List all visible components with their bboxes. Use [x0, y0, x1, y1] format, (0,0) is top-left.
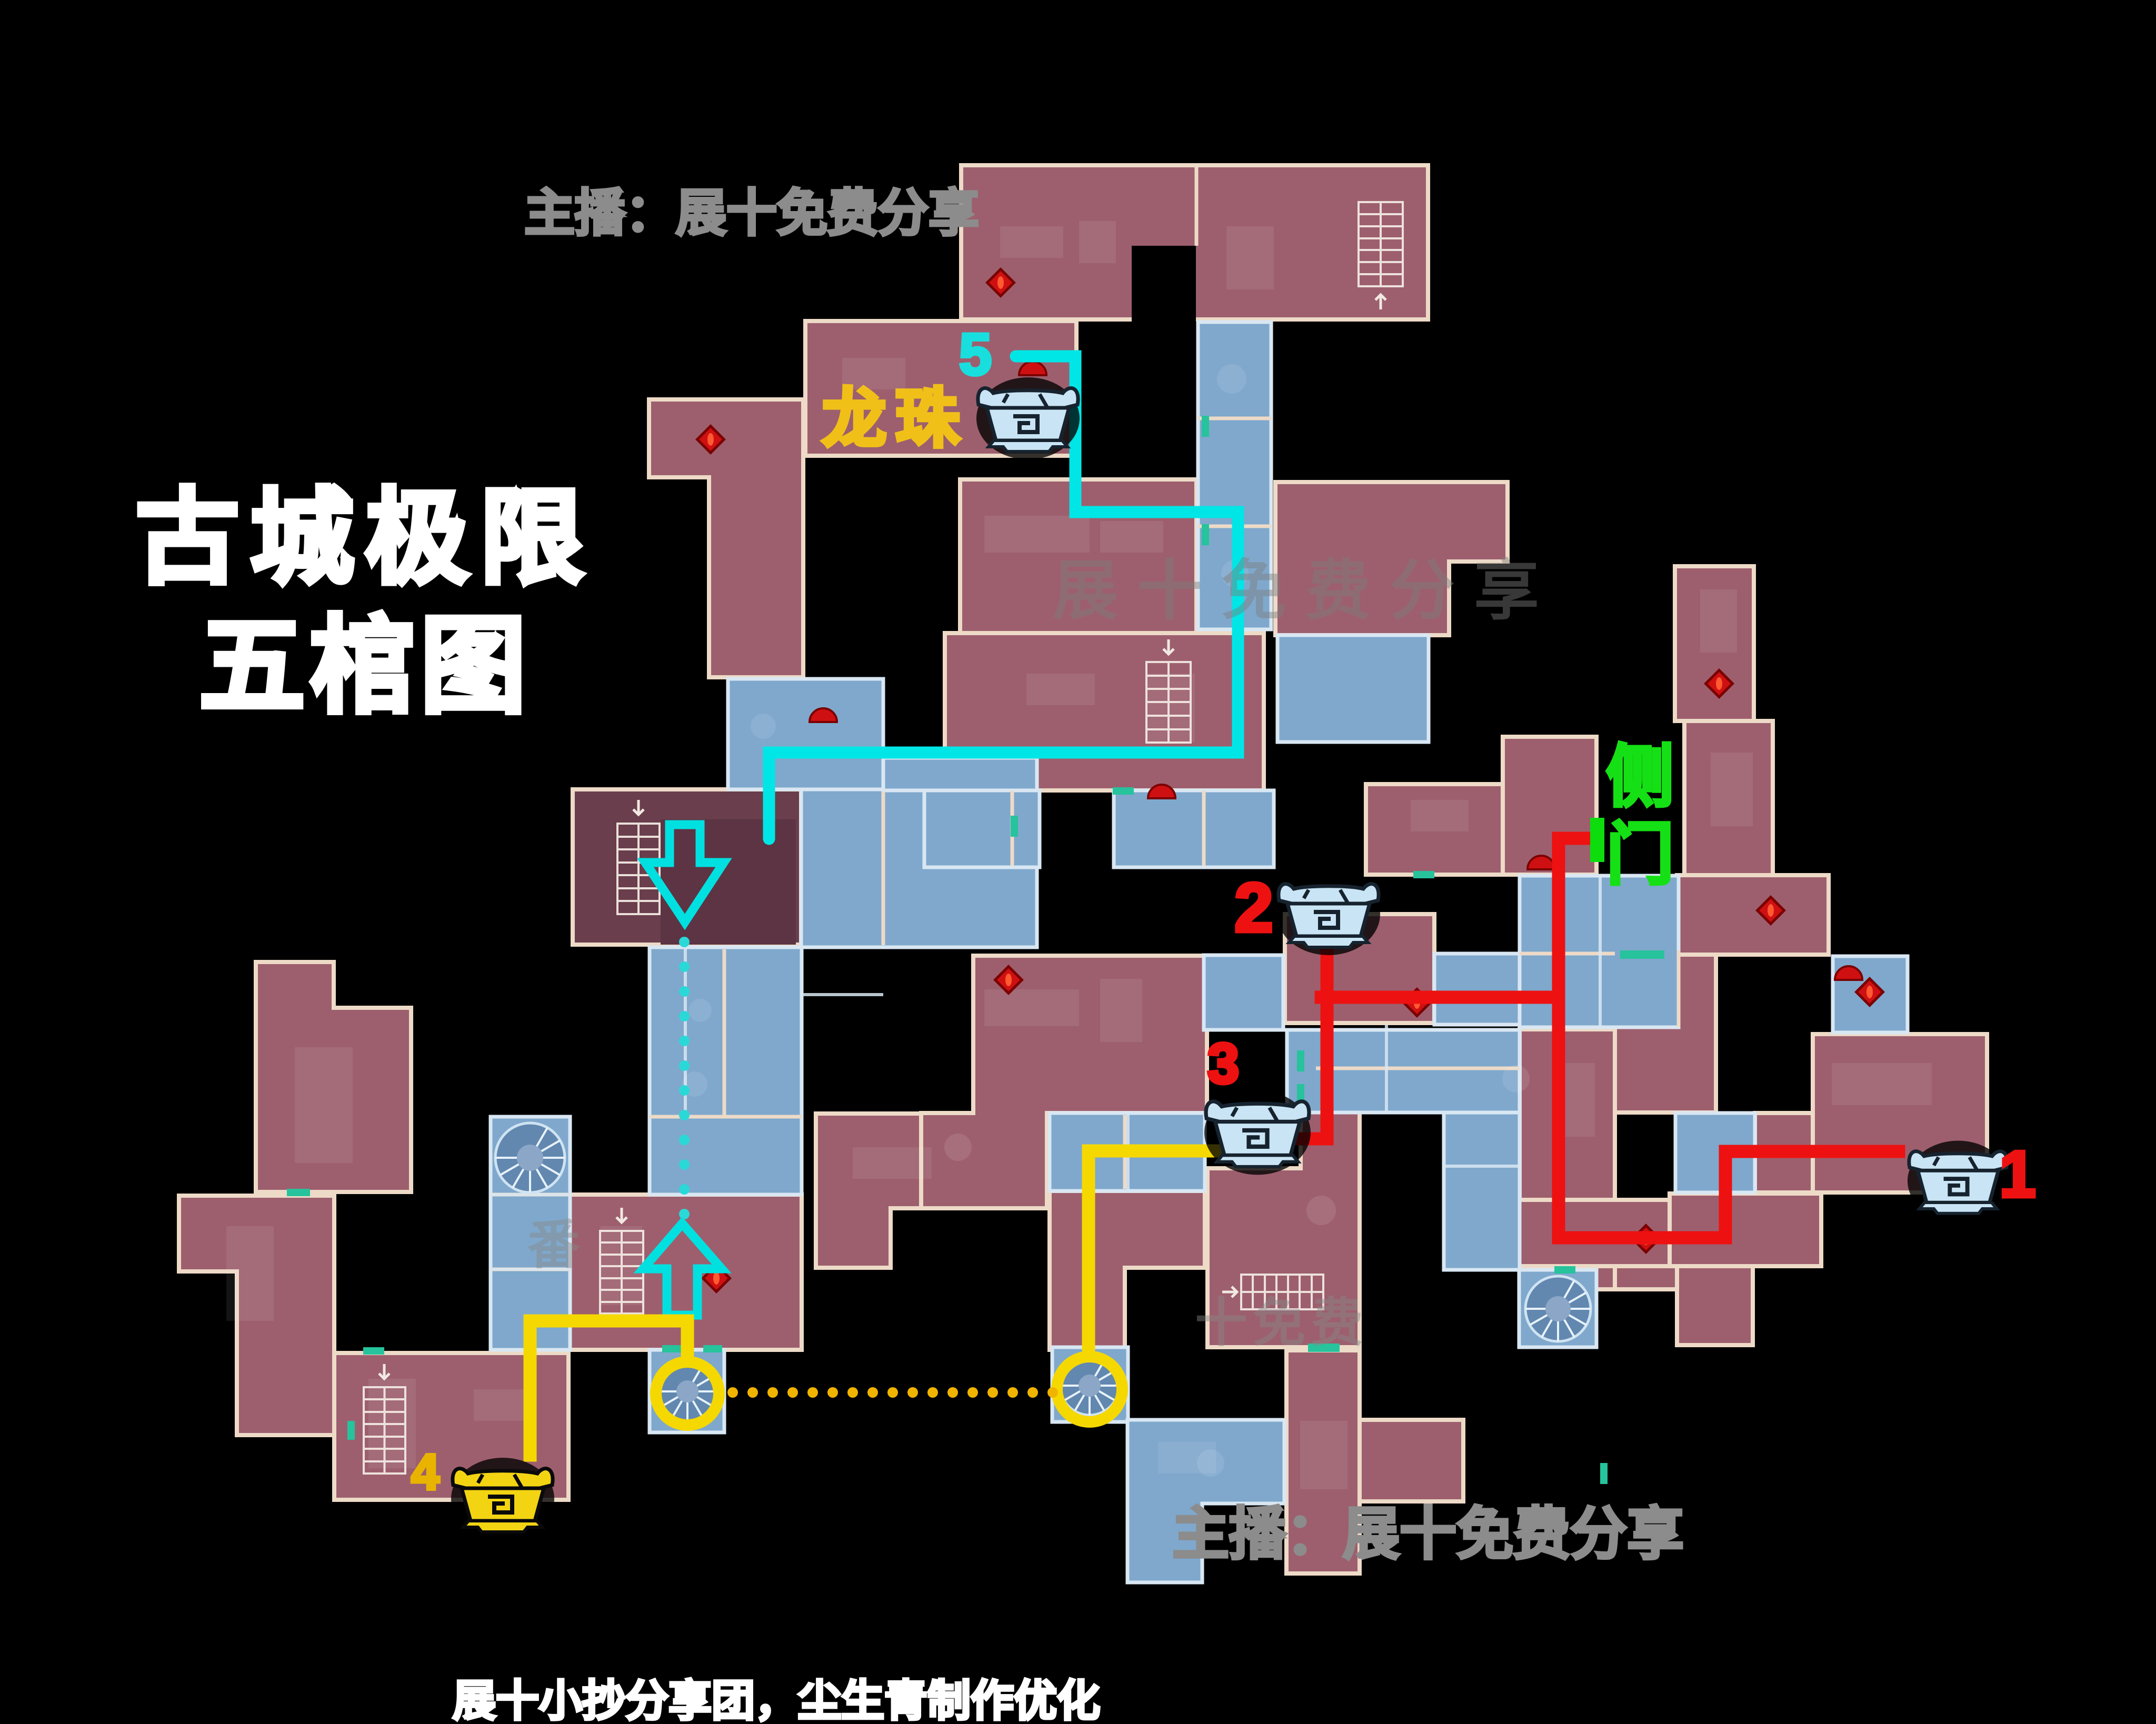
svg-text:1: 1: [2000, 1138, 2036, 1211]
svg-text:展十免费分享: 展十免费分享: [1053, 555, 1558, 627]
svg-text:4: 4: [411, 1444, 439, 1500]
svg-text:侧: 侧: [1606, 739, 1674, 815]
svg-text:古城极限: 古城极限: [136, 480, 595, 596]
svg-text:2: 2: [1234, 869, 1273, 946]
svg-text:3: 3: [1207, 1031, 1239, 1095]
svg-text:五棺图: 五棺图: [199, 608, 531, 725]
svg-text:主播：展十免费分享: 主播：展十免费分享: [524, 185, 979, 242]
svg-text:十免费: 十免费: [1195, 1294, 1369, 1352]
svg-text:番: 番: [527, 1216, 580, 1275]
svg-text:展十小抄分享团，尘生青制作优化: 展十小抄分享团，尘生青制作优化: [453, 1677, 1100, 1724]
svg-text:5: 5: [959, 322, 992, 387]
svg-text:主播：展十免费分享: 主播：展十免费分享: [1172, 1502, 1684, 1566]
svg-text:珠: 珠: [895, 383, 960, 455]
svg-text:门: 门: [1606, 817, 1674, 893]
svg-text:龙: 龙: [822, 383, 886, 455]
